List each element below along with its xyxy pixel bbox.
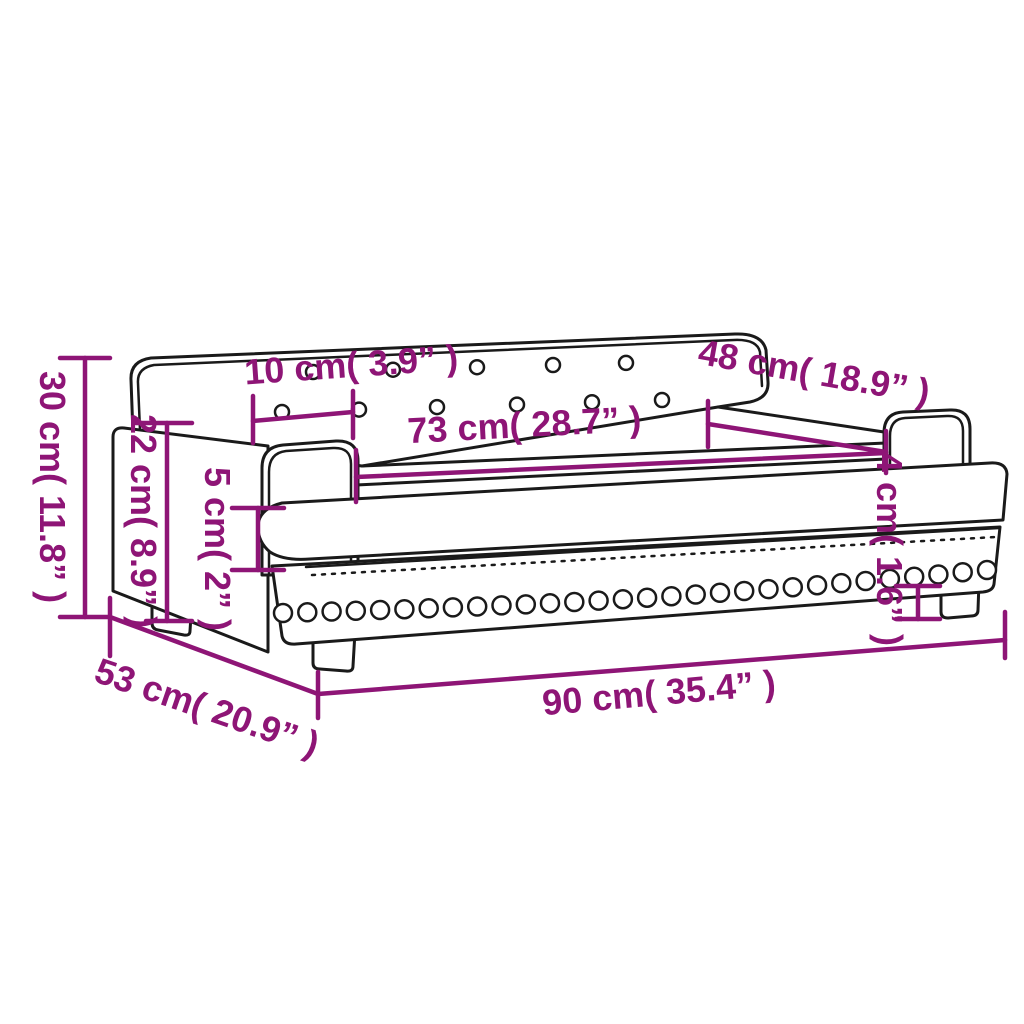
sofa-dimension-diagram: 30 cm( 11.8” ) 22 cm( 8.9” ) 5 cm( 2” ) …: [0, 0, 1024, 1024]
button-circle: [468, 598, 486, 616]
button-circle: [619, 356, 633, 370]
button-circle: [541, 594, 559, 612]
button-circle: [298, 603, 316, 621]
label-total-width: 90 cm( 35.4” ): [541, 662, 778, 723]
button-circle: [395, 600, 413, 618]
button-circle: [638, 589, 656, 607]
button-circle: [614, 590, 632, 608]
button-circle: [565, 593, 583, 611]
button-circle: [687, 586, 705, 604]
button-circle: [735, 582, 753, 600]
button-circle: [546, 358, 560, 372]
label-side-height: 22 cm( 8.9” ): [123, 414, 164, 628]
button-circle: [590, 592, 608, 610]
button-circle: [371, 601, 389, 619]
button-circle: [954, 563, 972, 581]
button-circle: [347, 602, 365, 620]
button-circle: [655, 393, 669, 407]
button-circle: [444, 598, 462, 616]
label-cushion-thickness: 5 cm( 2” ): [197, 467, 238, 631]
button-circle: [517, 595, 535, 613]
button-circle: [760, 580, 778, 598]
label-leg-height: 4 cm( 1.6” ): [869, 452, 910, 646]
button-circle: [711, 584, 729, 602]
button-circle: [662, 587, 680, 605]
button-circle: [808, 576, 826, 594]
button-circle: [493, 596, 511, 614]
dimension-diagram-page: 30 cm( 11.8” ) 22 cm( 8.9” ) 5 cm( 2” ) …: [0, 0, 1024, 1024]
button-circle: [470, 360, 484, 374]
label-total-height: 30 cm( 11.8” ): [32, 371, 73, 603]
button-circle: [978, 561, 996, 579]
button-circle: [929, 566, 947, 584]
button-circle: [832, 574, 850, 592]
label-total-depth: 53 cm( 20.9” ): [90, 650, 325, 765]
button-circle: [420, 599, 438, 617]
button-circle: [274, 604, 292, 622]
button-circle: [784, 578, 802, 596]
button-circle: [323, 603, 341, 621]
